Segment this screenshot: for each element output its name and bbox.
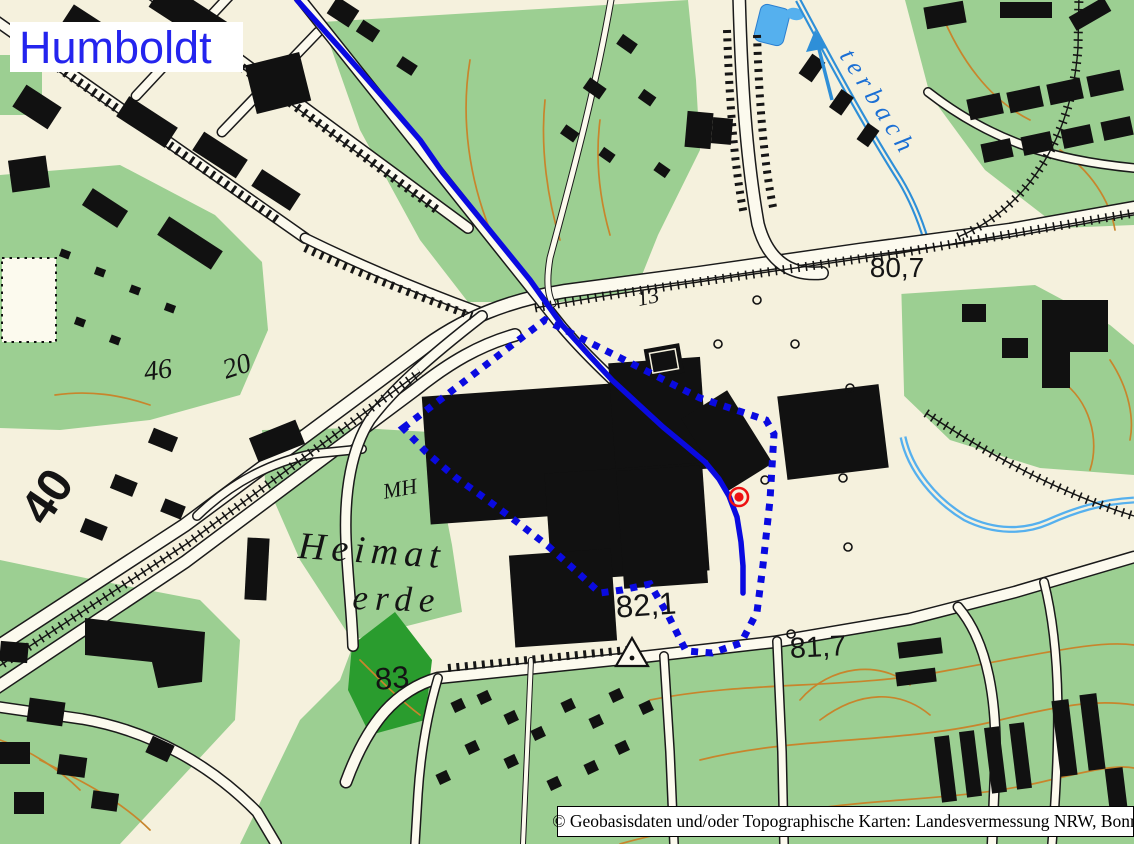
copyright-text: © Geobasisdaten und/oder Topographische …: [552, 811, 1134, 832]
region-title: Humboldt: [19, 25, 212, 70]
map-canvas: [0, 0, 1134, 844]
allotment-boundary: [2, 258, 56, 342]
copyright-bar: © Geobasisdaten und/oder Topographische …: [557, 806, 1134, 837]
region-title-box: Humboldt: [10, 22, 243, 72]
topographic-map[interactable]: Humboldt 80,7 82,1 81,7 83 13 46 20 40 M…: [0, 0, 1134, 844]
